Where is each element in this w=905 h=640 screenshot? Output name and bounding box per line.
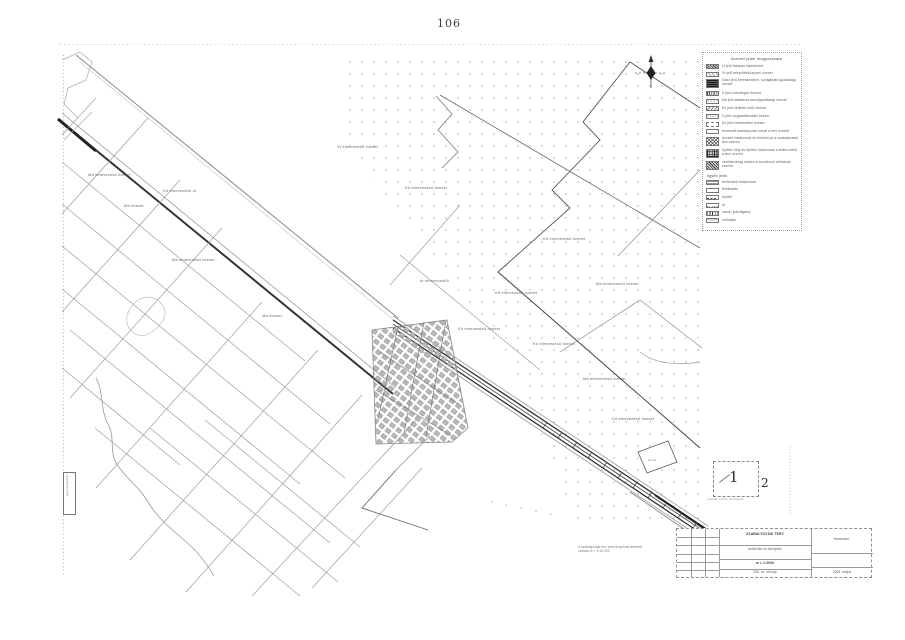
- legend-row: Má jelű általános mezőgazdasági övezet: [706, 99, 799, 104]
- legend-row: belterületi határvonal: [706, 180, 799, 185]
- zone-swatch-icon: [706, 137, 719, 146]
- zone-swatch-icon: [706, 99, 719, 104]
- zone-swatch-icon: [706, 72, 719, 77]
- legend-row: K jelű különleges övezet: [706, 91, 799, 96]
- parcel-label: Má övezet: [262, 314, 282, 318]
- parcel-label: Má elnevezésű övezet: [172, 258, 215, 262]
- title-block-divider: [677, 554, 719, 555]
- legend-item-label: Má jelű általános mezőgazdasági övezet: [722, 99, 787, 103]
- parcel-label: Kö elnevezésű övezet: [458, 327, 500, 331]
- parcel-label: Kö elnevezésű övezet: [543, 237, 585, 241]
- zone-swatch-icon: [706, 161, 719, 170]
- parcel-label: Má elnevezésű övezet: [596, 282, 639, 286]
- parcel-label: Vt elnevezésű övezet: [337, 145, 378, 149]
- title-block-divider: [677, 570, 719, 571]
- legend-row: övezeti határvonal és övezeti jel a szab…: [706, 137, 799, 146]
- parcel-label: Kö elnevezésű övezet: [405, 186, 447, 190]
- legend-row: Lf jelű falusias lakóövezet: [706, 64, 799, 69]
- legend-box: övezeti jelek magyarázata Lf jelű falusi…: [702, 52, 802, 231]
- sheet-index-box-1: 1: [713, 461, 759, 497]
- parcel-label: Má elnevezésű övezet: [583, 377, 626, 381]
- title-block: SZABÁLYOZÁSI TERV belterület és környéke…: [676, 528, 872, 578]
- legend-row: telekhatár: [706, 188, 799, 193]
- line-symbol-icon: [706, 218, 719, 223]
- line-symbol-icon: [706, 203, 719, 208]
- legend-item-label: övezeti határvonal és övezeti jel a szab…: [722, 137, 799, 145]
- legend-row: út: [706, 203, 799, 208]
- legend-item-label: Gksz jelű kereskedelmi, szolgáltató gazd…: [722, 79, 799, 87]
- legend-item-label: Ev jelű védelmi erdő övezet: [722, 107, 766, 111]
- title-block-divider: [811, 567, 873, 568]
- parcel-label: Má elnevezésű övezet: [88, 173, 131, 177]
- legend-item-label: belterületi határvonal: [722, 181, 756, 185]
- title-block-divider: [677, 562, 719, 563]
- legend-row: V jelű vízgazdálkodási övezet: [706, 114, 799, 119]
- legend-item-label: építési hely és építési határvonal a tel…: [722, 149, 799, 157]
- legend-item-label: Lf jelű falusias lakóövezet: [722, 65, 763, 69]
- zone-swatch-icon: [706, 149, 719, 158]
- sheet-index-caption: szabályozási tervlapok: [707, 497, 763, 501]
- zone-swatch-icon: [706, 79, 719, 88]
- legend-item-label: V jelű vízgazdálkodási övezet: [722, 115, 769, 119]
- title-block-header: SZABÁLYOZÁSI TERV: [721, 532, 809, 536]
- legend-row: védőtávolság határa a vonatkozó előíráso…: [706, 161, 799, 170]
- legend-item-label: Vt jelű településközponti övezet: [722, 72, 773, 76]
- legend-row: Gksz jelű kereskedelmi, szolgáltató gazd…: [706, 79, 799, 88]
- legend-row: épület: [706, 195, 799, 200]
- legend-row: tervezett szabályozási vonal a terv szer…: [706, 129, 799, 134]
- legend-item-label: út: [722, 204, 725, 208]
- zone-swatch-icon: [706, 129, 719, 134]
- sheet-number-2: 2: [761, 476, 769, 490]
- zone-swatch-icon: [706, 91, 719, 96]
- zone-swatch-icon: [706, 106, 719, 111]
- parcel-label: Kö elnevezésű övezet: [495, 291, 537, 295]
- legend-item-label: vasút, iparvágány: [722, 211, 750, 215]
- legend-row: vízfolyás: [706, 218, 799, 223]
- title-block-right-bottom: 2005. május: [813, 571, 871, 575]
- line-symbol-icon: [706, 211, 719, 216]
- title-block-right-top: törzsszám:: [813, 538, 871, 542]
- title-block-divider: [677, 537, 719, 538]
- legend-item-label: K jelű különleges övezet: [722, 92, 761, 96]
- legend-item-label: Kö jelű közlekedési övezet: [722, 122, 765, 126]
- line-symbol-icon: [706, 180, 719, 185]
- legend-item-label: épület: [722, 196, 732, 200]
- parcel-label: Má övezet: [124, 204, 144, 208]
- legend-row: Vt jelű településközponti övezet: [706, 72, 799, 77]
- zone-swatch-icon: [706, 64, 719, 69]
- legend-item-label: vízfolyás: [722, 219, 736, 223]
- settlement-grid: [372, 320, 468, 444]
- legend-subtitle: egyéb jelek: [707, 174, 799, 178]
- title-block-divider: [677, 545, 719, 546]
- title-block-sub1: belterület és környéke: [721, 548, 809, 552]
- legend-row: vasút, iparvágány: [706, 211, 799, 216]
- sheet-number-1: 1: [729, 468, 739, 486]
- legend-row: Kö jelű közlekedési övezet: [706, 122, 799, 127]
- scanned-zoning-map-page: 106 Má elnevezésű övezet Má övezet Kö el…: [0, 0, 905, 640]
- zone-swatch-icon: [706, 122, 719, 127]
- title-block-divider: [811, 553, 873, 554]
- sheet-edge-box: szelvényhatár: [63, 472, 76, 515]
- title-block-divider: [719, 545, 811, 546]
- legend-item-label: tervezett szabályozási vonal a terv szer…: [722, 130, 789, 134]
- road-band-label: Kö elnevezésű út: [163, 189, 196, 193]
- sheet-edge-label: szelvényhatár: [65, 474, 69, 496]
- line-symbol-icon: [706, 188, 719, 193]
- legend-item-label: védőtávolság határa a vonatkozó előíráso…: [722, 161, 799, 169]
- stream-line: [96, 297, 214, 576]
- bottom-wedge: [362, 436, 552, 530]
- title-block-sub2: m = 1:2000: [721, 561, 809, 565]
- parcel-label: Kö öv.: [648, 459, 657, 462]
- legend-item-label: telekhatár: [722, 188, 738, 192]
- legend-row: építési hely és építési határvonal a tel…: [706, 149, 799, 158]
- page-number: 106: [437, 17, 461, 30]
- parcel-label: Kö elnevezésű övezet: [533, 342, 575, 346]
- parcel-label: út elnevezéstől: [420, 279, 449, 283]
- line-symbol-icon: [706, 195, 719, 200]
- legend-title: övezeti jelek magyarázata: [714, 56, 799, 61]
- parcel-label: Kö elnevezésű övezet: [612, 417, 654, 421]
- title-block-divider: [719, 559, 811, 560]
- title-block-sub3: 106. sz. tervlap: [721, 571, 809, 575]
- legend-row: Ev jelű védelmi erdő övezet: [706, 106, 799, 111]
- zone-swatch-icon: [706, 114, 719, 119]
